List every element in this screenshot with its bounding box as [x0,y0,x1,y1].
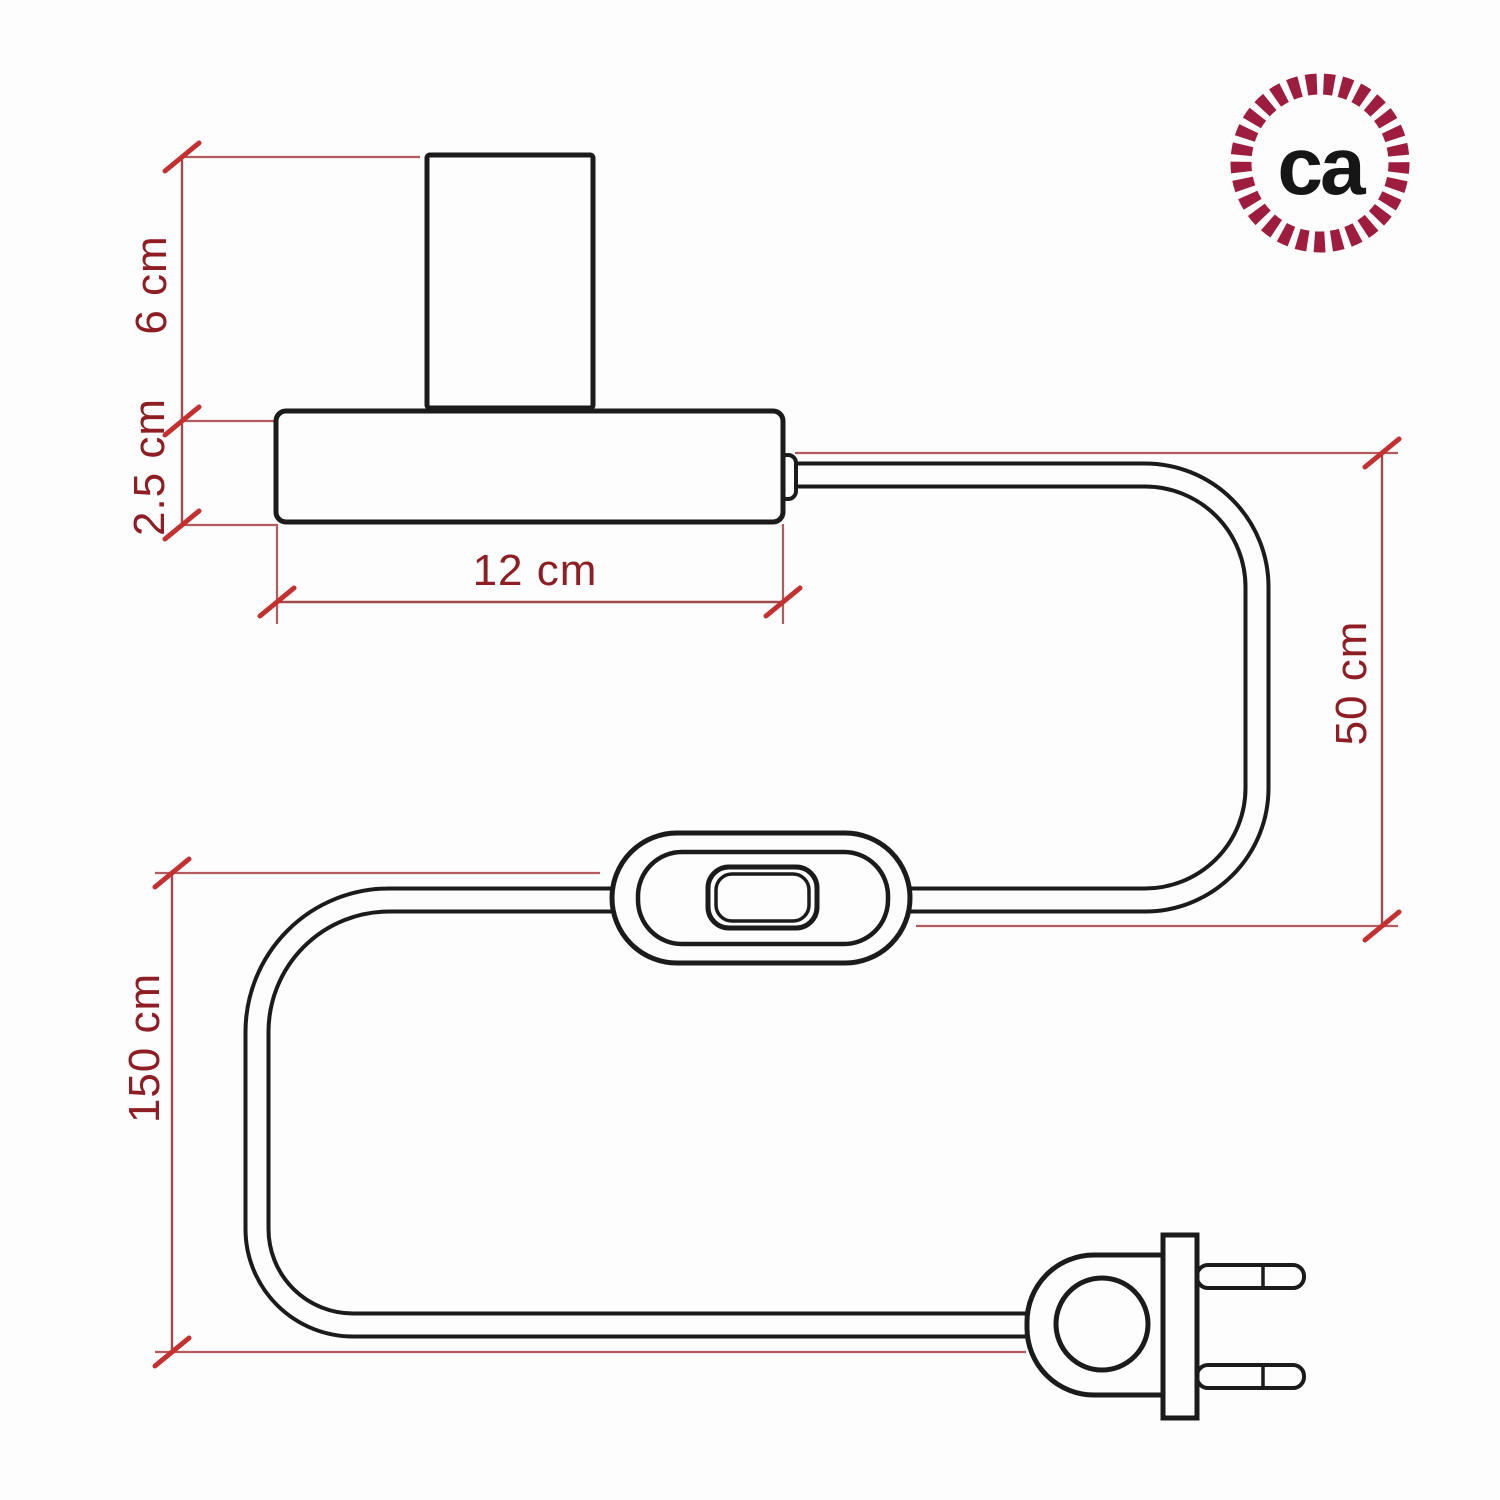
dim-label-cable-switch-to-plug: 150 cm [120,973,170,1123]
plug-face-plate [1163,1235,1197,1418]
plug-pin-bottom [1197,1365,1304,1388]
cable-switch-to-plug-fill [257,900,1035,1325]
lamp-base [276,411,783,522]
dimension-extension-lines [155,157,1398,1352]
dim-label-socket-height: 6 cm [127,235,177,334]
inline-switch [612,833,910,963]
lamp-socket-cylinder [427,155,593,408]
euro-plug [1027,1235,1304,1418]
dim-label-cable-lamp-to-switch: 50 cm [1327,621,1377,746]
creative-cables-logo: ca [1228,71,1412,255]
plug-body-circle [1056,1278,1148,1370]
dim-label-base-height: 2.5 cm [125,398,175,536]
dim-label-base-width: 12 cm [473,546,598,596]
dimension-lines [172,157,1382,1352]
logo-text: ca [1277,120,1362,214]
lamp [276,155,796,522]
lamp-dimension-diagram: 6 cm 2.5 cm 12 cm 50 cm 150 cm ca [0,0,1500,1500]
dimension-tick-marks [155,143,1399,1366]
cable-switch-to-plug-outline [257,900,1035,1325]
plug-pin-top [1197,1265,1304,1288]
